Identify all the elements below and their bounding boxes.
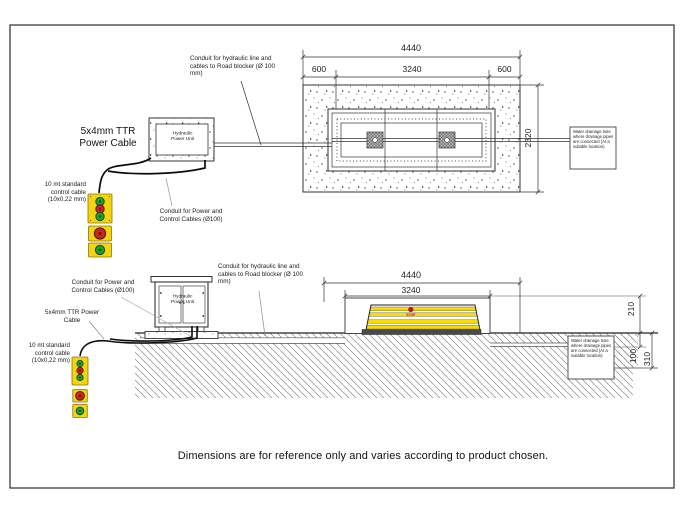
drawing-geometry: STOP	[0, 0, 686, 515]
blocker-base-plate	[362, 330, 481, 335]
control-station-elevation	[72, 357, 88, 418]
dim-210-elev: 210	[626, 289, 638, 329]
control-station-plan	[88, 194, 112, 257]
leader-conduit-power-plan	[166, 178, 172, 206]
stop-sign-text: STOP	[406, 313, 416, 317]
dim-100-elev: 100	[628, 336, 640, 376]
dim-600-left-plan: 600	[303, 64, 335, 74]
stop-sign-octagon	[408, 307, 413, 312]
label-hpu-plan: Hydraulic Power Unit	[169, 131, 196, 142]
dim-4440-elev: 4440	[391, 270, 431, 281]
label-control-cable-elev: 10 mt standard control cable (10x0,22 mm…	[16, 342, 70, 365]
leader-conduit-hydraulic-plan	[241, 81, 261, 145]
label-drainage-note-plan: Water drainage hole where drainage pipes…	[573, 130, 615, 150]
power-cable-plan	[99, 158, 205, 193]
dim-600-right-plan: 600	[488, 64, 521, 74]
leader-conduit-hydraulic-elev	[259, 291, 265, 336]
footer-disclaimer: Dimensions are for reference only and va…	[163, 450, 563, 463]
label-conduit-hydraulic-plan: Conduit for hydraulic line and cables to…	[190, 55, 284, 78]
hydraulic-power-unit-cabinet	[145, 277, 218, 339]
dim-3240-plan: 3240	[392, 64, 432, 74]
label-conduit-hydraulic-elev: Conduit for hydraulic line and cables to…	[218, 263, 312, 286]
dim-4440-plan: 4440	[391, 43, 431, 54]
label-hpu-elev: Hydraulic Power Unit	[169, 294, 196, 305]
road-blocker-elevation: STOP	[360, 305, 485, 335]
label-power-cable-plan: 5x4mm TTR Power Cable	[72, 126, 144, 150]
label-power-cable-elev: 5x4mm TTR Power Cable	[44, 309, 100, 324]
dim-2320-plan: 2320	[523, 118, 535, 158]
label-conduit-power-plan: Conduit for Power and Control Cables (Ø1…	[152, 208, 230, 223]
dim-310-elev: 310	[642, 339, 654, 379]
drain-pipe-elev	[490, 343, 570, 346]
dim-3240-elev: 3240	[391, 285, 431, 295]
technical-drawing-page: STOP	[0, 0, 686, 515]
label-control-cable-plan: 10 mt standard control cable (10x0,22 mm…	[34, 181, 86, 204]
label-conduit-power-elev: Conduit for Power and Control Cables (Ø1…	[64, 279, 142, 294]
label-drainage-note-elev: Water drainage hole where drainage pipes…	[571, 339, 613, 359]
plan-view	[88, 50, 616, 257]
